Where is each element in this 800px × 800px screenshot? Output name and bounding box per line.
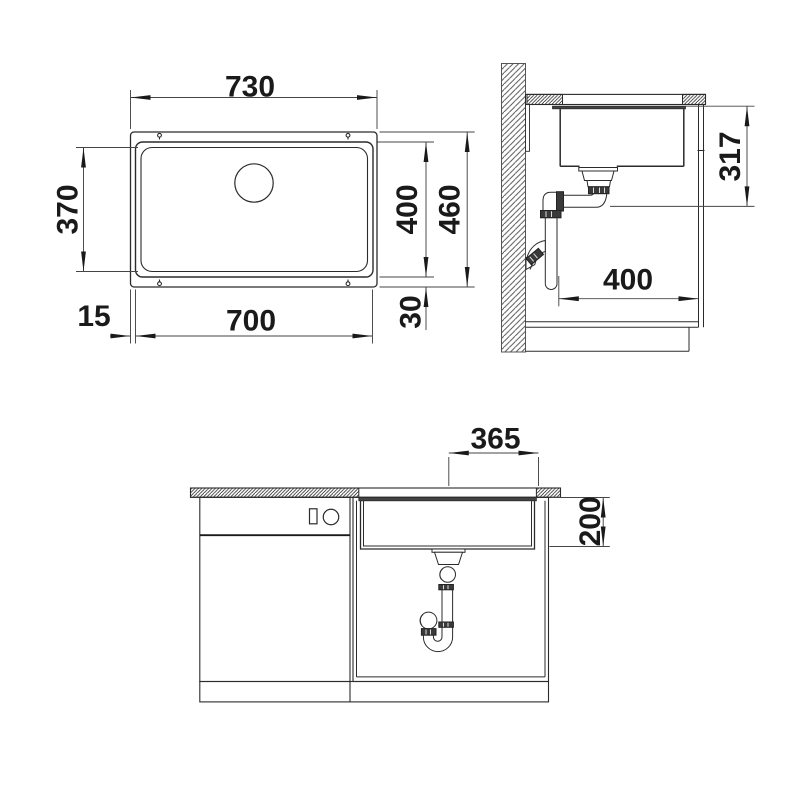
- svg-text:400: 400: [391, 184, 424, 234]
- svg-text:730: 730: [225, 71, 275, 104]
- svg-text:365: 365: [470, 423, 520, 456]
- svg-text:317: 317: [714, 131, 747, 181]
- svg-text:370: 370: [52, 184, 85, 234]
- svg-text:200: 200: [574, 496, 607, 546]
- svg-text:460: 460: [433, 184, 466, 234]
- svg-text:15: 15: [77, 300, 110, 333]
- svg-text:700: 700: [226, 305, 276, 338]
- svg-text:30: 30: [395, 295, 428, 328]
- svg-text:400: 400: [603, 264, 653, 297]
